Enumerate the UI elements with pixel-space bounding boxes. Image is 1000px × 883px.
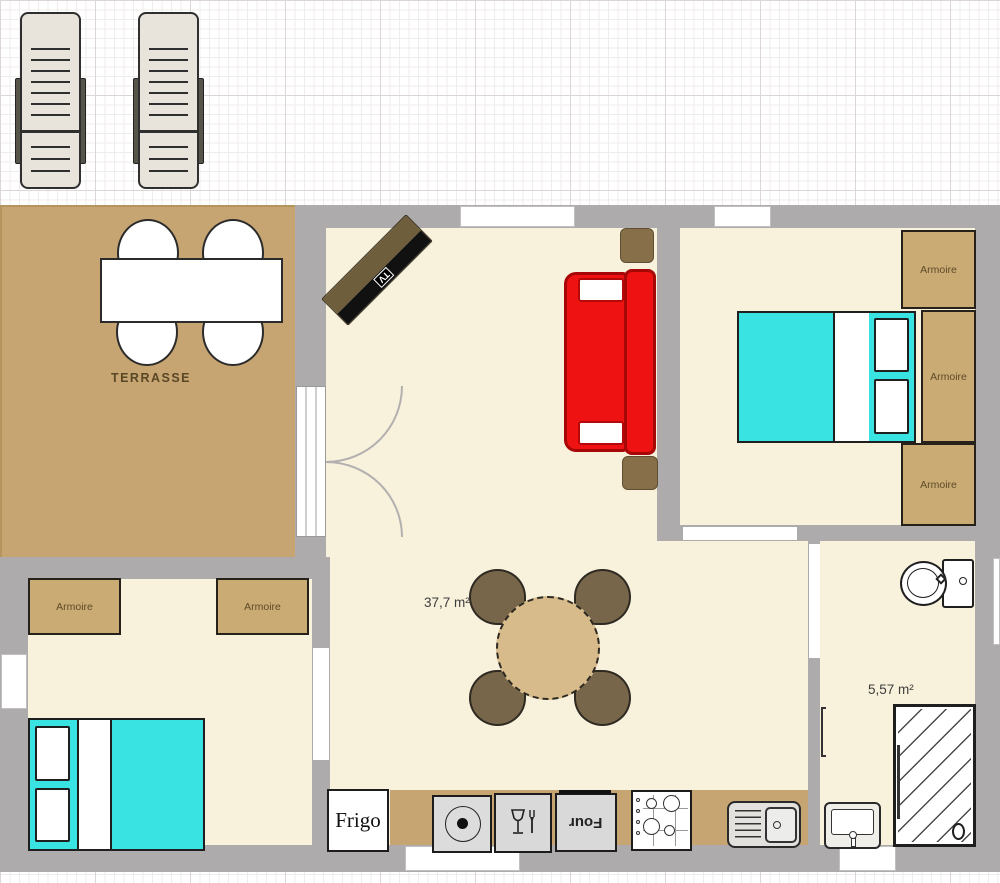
armoire-cabinet[interactable]: Armoire	[921, 310, 976, 443]
doorway-bathroom[interactable]	[809, 544, 820, 658]
armoire-label: Armoire	[930, 371, 967, 383]
sofa-cushion	[578, 421, 624, 445]
wall-bedroom-left-top[interactable]	[0, 557, 330, 579]
dining-table[interactable]	[496, 596, 600, 700]
stove-burner	[664, 825, 675, 836]
lounger-slats-lower	[149, 146, 188, 180]
window-bathroom-bottom[interactable]	[839, 846, 896, 871]
double-bed[interactable]	[28, 718, 205, 851]
bed-pillow-panel	[30, 720, 79, 849]
wall-bedroom-right-living[interactable]	[657, 205, 680, 541]
window-bedroom-left[interactable]	[1, 654, 27, 709]
armoire-label: Armoire	[56, 601, 93, 613]
oven-handle	[559, 790, 611, 794]
bed-pillow	[35, 726, 70, 781]
side-table[interactable]	[620, 228, 654, 263]
sink-basin	[765, 807, 797, 843]
toilet[interactable]	[898, 557, 976, 609]
bed-blanket	[110, 720, 203, 849]
terrace-table[interactable]	[100, 258, 283, 323]
oven-label: Four	[569, 814, 602, 831]
shower[interactable]	[893, 704, 976, 847]
stove[interactable]	[631, 790, 692, 851]
bathroom-sink[interactable]	[824, 802, 881, 849]
armoire-label: Armoire	[244, 601, 281, 613]
stove-knob	[636, 809, 640, 813]
lounger-slats-lower	[31, 146, 70, 180]
terrace-label: TERRASSE	[105, 371, 197, 385]
stove-burner	[663, 795, 680, 812]
hotplate[interactable]	[432, 795, 492, 853]
lounger-slats-upper	[149, 48, 188, 120]
sink-drainboard-icon	[735, 810, 761, 840]
armoire-cabinet[interactable]: Armoire	[901, 443, 976, 526]
french-door-frame-line	[305, 387, 307, 536]
french-door-frame-line	[315, 387, 317, 536]
shower-door-handle	[897, 745, 900, 819]
hotplate-dot-icon	[457, 818, 468, 829]
sofa-cushion	[578, 278, 624, 302]
bed-pillow	[35, 788, 70, 842]
fridge-label: Frigo	[335, 808, 381, 833]
window-bathroom-right[interactable]	[993, 558, 1000, 645]
bathroom-door-leaf[interactable]	[821, 707, 826, 757]
floor-plan-canvas: TERRASSE TV 37,7 m² Frig	[0, 0, 1000, 883]
armoire-cabinet[interactable]: Armoire	[28, 578, 121, 635]
lounger-fold-line	[20, 130, 81, 133]
double-bed[interactable]	[737, 311, 916, 443]
armoire-label: Armoire	[920, 479, 957, 491]
bathroom-area-label: 5,57 m²	[868, 682, 914, 697]
sink-drain-icon	[773, 821, 781, 829]
toilet-bowl-inner	[907, 568, 939, 598]
bed-blanket	[739, 313, 835, 441]
side-table[interactable]	[622, 456, 658, 490]
kitchen-sink[interactable]	[727, 801, 801, 848]
stove-knob	[636, 798, 640, 802]
lounger-fold-line	[138, 130, 199, 133]
stove-burner	[646, 798, 657, 809]
bed-sheet	[79, 720, 110, 849]
fridge[interactable]: Frigo	[327, 789, 389, 852]
living-area-label: 37,7 m²	[424, 595, 470, 610]
wall-left[interactable]	[0, 557, 28, 872]
toilet-flush-button	[959, 577, 967, 585]
shower-hatch-pattern	[898, 709, 971, 842]
stove-knob	[636, 820, 640, 824]
oven[interactable]: Four	[555, 793, 617, 852]
window-living-top[interactable]	[460, 206, 575, 227]
bed-pillow	[874, 318, 909, 372]
armoire-cabinet[interactable]: Armoire	[901, 230, 976, 309]
wine-glass-fork-icon	[508, 807, 538, 839]
faucet-stem-icon	[851, 838, 856, 847]
dishwasher[interactable]	[494, 793, 552, 853]
bed-sheet	[835, 313, 869, 441]
french-door[interactable]	[296, 386, 326, 537]
sofa-backrest	[624, 269, 656, 455]
stove-knob	[636, 831, 640, 835]
doorway-bedroom-right[interactable]	[683, 527, 797, 540]
shower-drain-icon	[952, 823, 965, 840]
bed-pillow	[874, 379, 909, 434]
sun-lounger[interactable]	[11, 10, 106, 192]
window-bedroom-right-top[interactable]	[714, 206, 771, 227]
armoire-label: Armoire	[920, 264, 957, 276]
lounger-slats-upper	[31, 48, 70, 120]
stove-burner	[643, 818, 660, 835]
sun-lounger[interactable]	[129, 10, 224, 192]
doorway-bedroom-left[interactable]	[313, 648, 329, 760]
bed-pillow-panel	[869, 313, 914, 441]
armoire-cabinet[interactable]: Armoire	[216, 578, 309, 635]
